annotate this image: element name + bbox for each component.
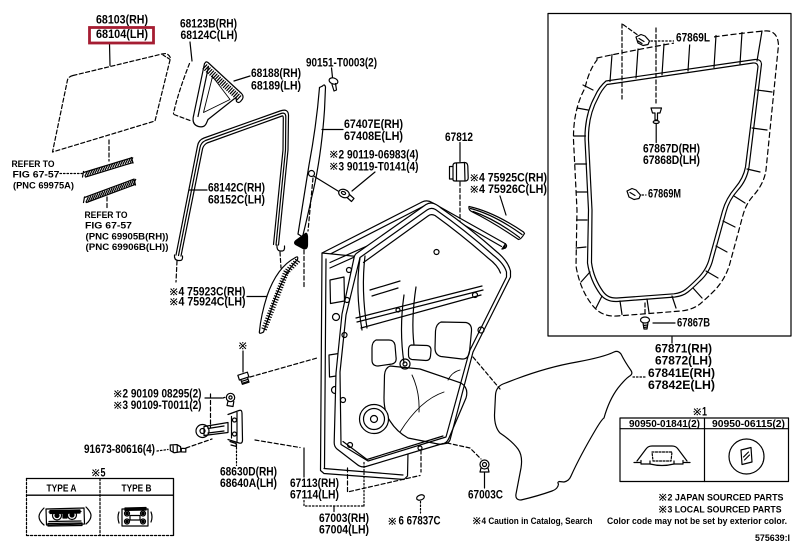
svg-text:68189(LH): 68189(LH) — [251, 81, 301, 93]
svg-text:68104(LH): 68104(LH) — [96, 29, 148, 41]
svg-text:67842E(LH): 67842E(LH) — [648, 380, 715, 392]
svg-text:2 90119-06983(4): 2 90119-06983(4) — [339, 150, 419, 162]
svg-text:Color code may not be set by e: Color code may not be set by exterior co… — [607, 516, 787, 526]
svg-text:67867B: 67867B — [677, 318, 710, 330]
svg-text:6 67837C: 6 67837C — [399, 516, 441, 528]
svg-text:2 JAPAN SOURCED PARTS: 2 JAPAN SOURCED PARTS — [668, 493, 784, 504]
svg-text:(PNC 69975A): (PNC 69975A) — [13, 181, 74, 192]
svg-text:68152C(LH): 68152C(LH) — [208, 195, 265, 207]
svg-text:67867D(RH): 67867D(RH) — [643, 144, 700, 156]
svg-text:68142C(RH): 68142C(RH) — [208, 183, 265, 195]
svg-text:67003(RH): 67003(RH) — [319, 513, 369, 525]
svg-text:67812: 67812 — [445, 132, 473, 144]
svg-text:90151-T0003(2): 90151-T0003(2) — [306, 58, 377, 70]
svg-text:68124C(LH): 68124C(LH) — [181, 30, 238, 42]
svg-text:(PNC 69905B(RH)): (PNC 69905B(RH)) — [86, 232, 169, 243]
svg-text:3 LOCAL SOURCED PARTS: 3 LOCAL SOURCED PARTS — [668, 505, 782, 516]
svg-text:67869L: 67869L — [676, 33, 710, 45]
svg-text:91673-80616(4): 91673-80616(4) — [84, 444, 155, 456]
svg-text:68103(RH): 68103(RH) — [96, 15, 148, 27]
svg-text:67841E(RH): 67841E(RH) — [648, 368, 715, 380]
svg-text:67408E(LH): 67408E(LH) — [344, 131, 403, 143]
svg-text:68188(RH): 68188(RH) — [251, 68, 301, 80]
svg-text:FIG 67-57: FIG 67-57 — [85, 221, 132, 232]
svg-text:90950-01841(2): 90950-01841(2) — [629, 418, 700, 430]
svg-text:5: 5 — [101, 468, 106, 480]
svg-text:1: 1 — [702, 407, 707, 419]
svg-text:(PNC 69906B(LH)): (PNC 69906B(LH)) — [86, 242, 169, 253]
svg-text:2 90109 08295(2): 2 90109 08295(2) — [123, 389, 202, 401]
svg-text:4 75926C(LH): 4 75926C(LH) — [479, 184, 547, 196]
svg-text:68640A(LH): 68640A(LH) — [220, 478, 277, 490]
svg-text:68123B(RH): 68123B(RH) — [180, 19, 237, 31]
svg-text:3 90109-T0011(2): 3 90109-T0011(2) — [123, 400, 202, 412]
svg-text:68630D(RH): 68630D(RH) — [220, 467, 277, 479]
svg-text:67872(LH): 67872(LH) — [655, 356, 712, 368]
svg-text:TYPE B: TYPE B — [122, 483, 152, 495]
svg-text:4 75925C(RH): 4 75925C(RH) — [479, 173, 547, 185]
svg-text:67114(LH): 67114(LH) — [290, 490, 339, 502]
svg-text:TYPE A: TYPE A — [47, 483, 77, 495]
svg-text:FIG 67-57: FIG 67-57 — [13, 170, 60, 181]
svg-text:REFER TO: REFER TO — [12, 159, 55, 170]
svg-text:4 75924C(LH): 4 75924C(LH) — [179, 297, 246, 309]
svg-text:4 Caution in Catalog, Search: 4 Caution in Catalog, Search — [482, 516, 593, 526]
svg-text:REFER TO: REFER TO — [85, 210, 128, 221]
svg-text:67869M: 67869M — [648, 189, 681, 201]
svg-text:67004(LH): 67004(LH) — [319, 525, 369, 537]
svg-text:67871(RH): 67871(RH) — [655, 344, 712, 356]
svg-text:67868D(LH): 67868D(LH) — [643, 155, 700, 167]
svg-text:67407E(RH): 67407E(RH) — [344, 119, 403, 131]
svg-text:67003C: 67003C — [468, 490, 503, 502]
svg-text:90950-06115(2): 90950-06115(2) — [712, 418, 785, 430]
svg-text:3 90119-T0141(4): 3 90119-T0141(4) — [339, 162, 419, 174]
svg-text:575639:I: 575639:I — [755, 533, 790, 544]
svg-text:67113(RH): 67113(RH) — [290, 478, 339, 490]
